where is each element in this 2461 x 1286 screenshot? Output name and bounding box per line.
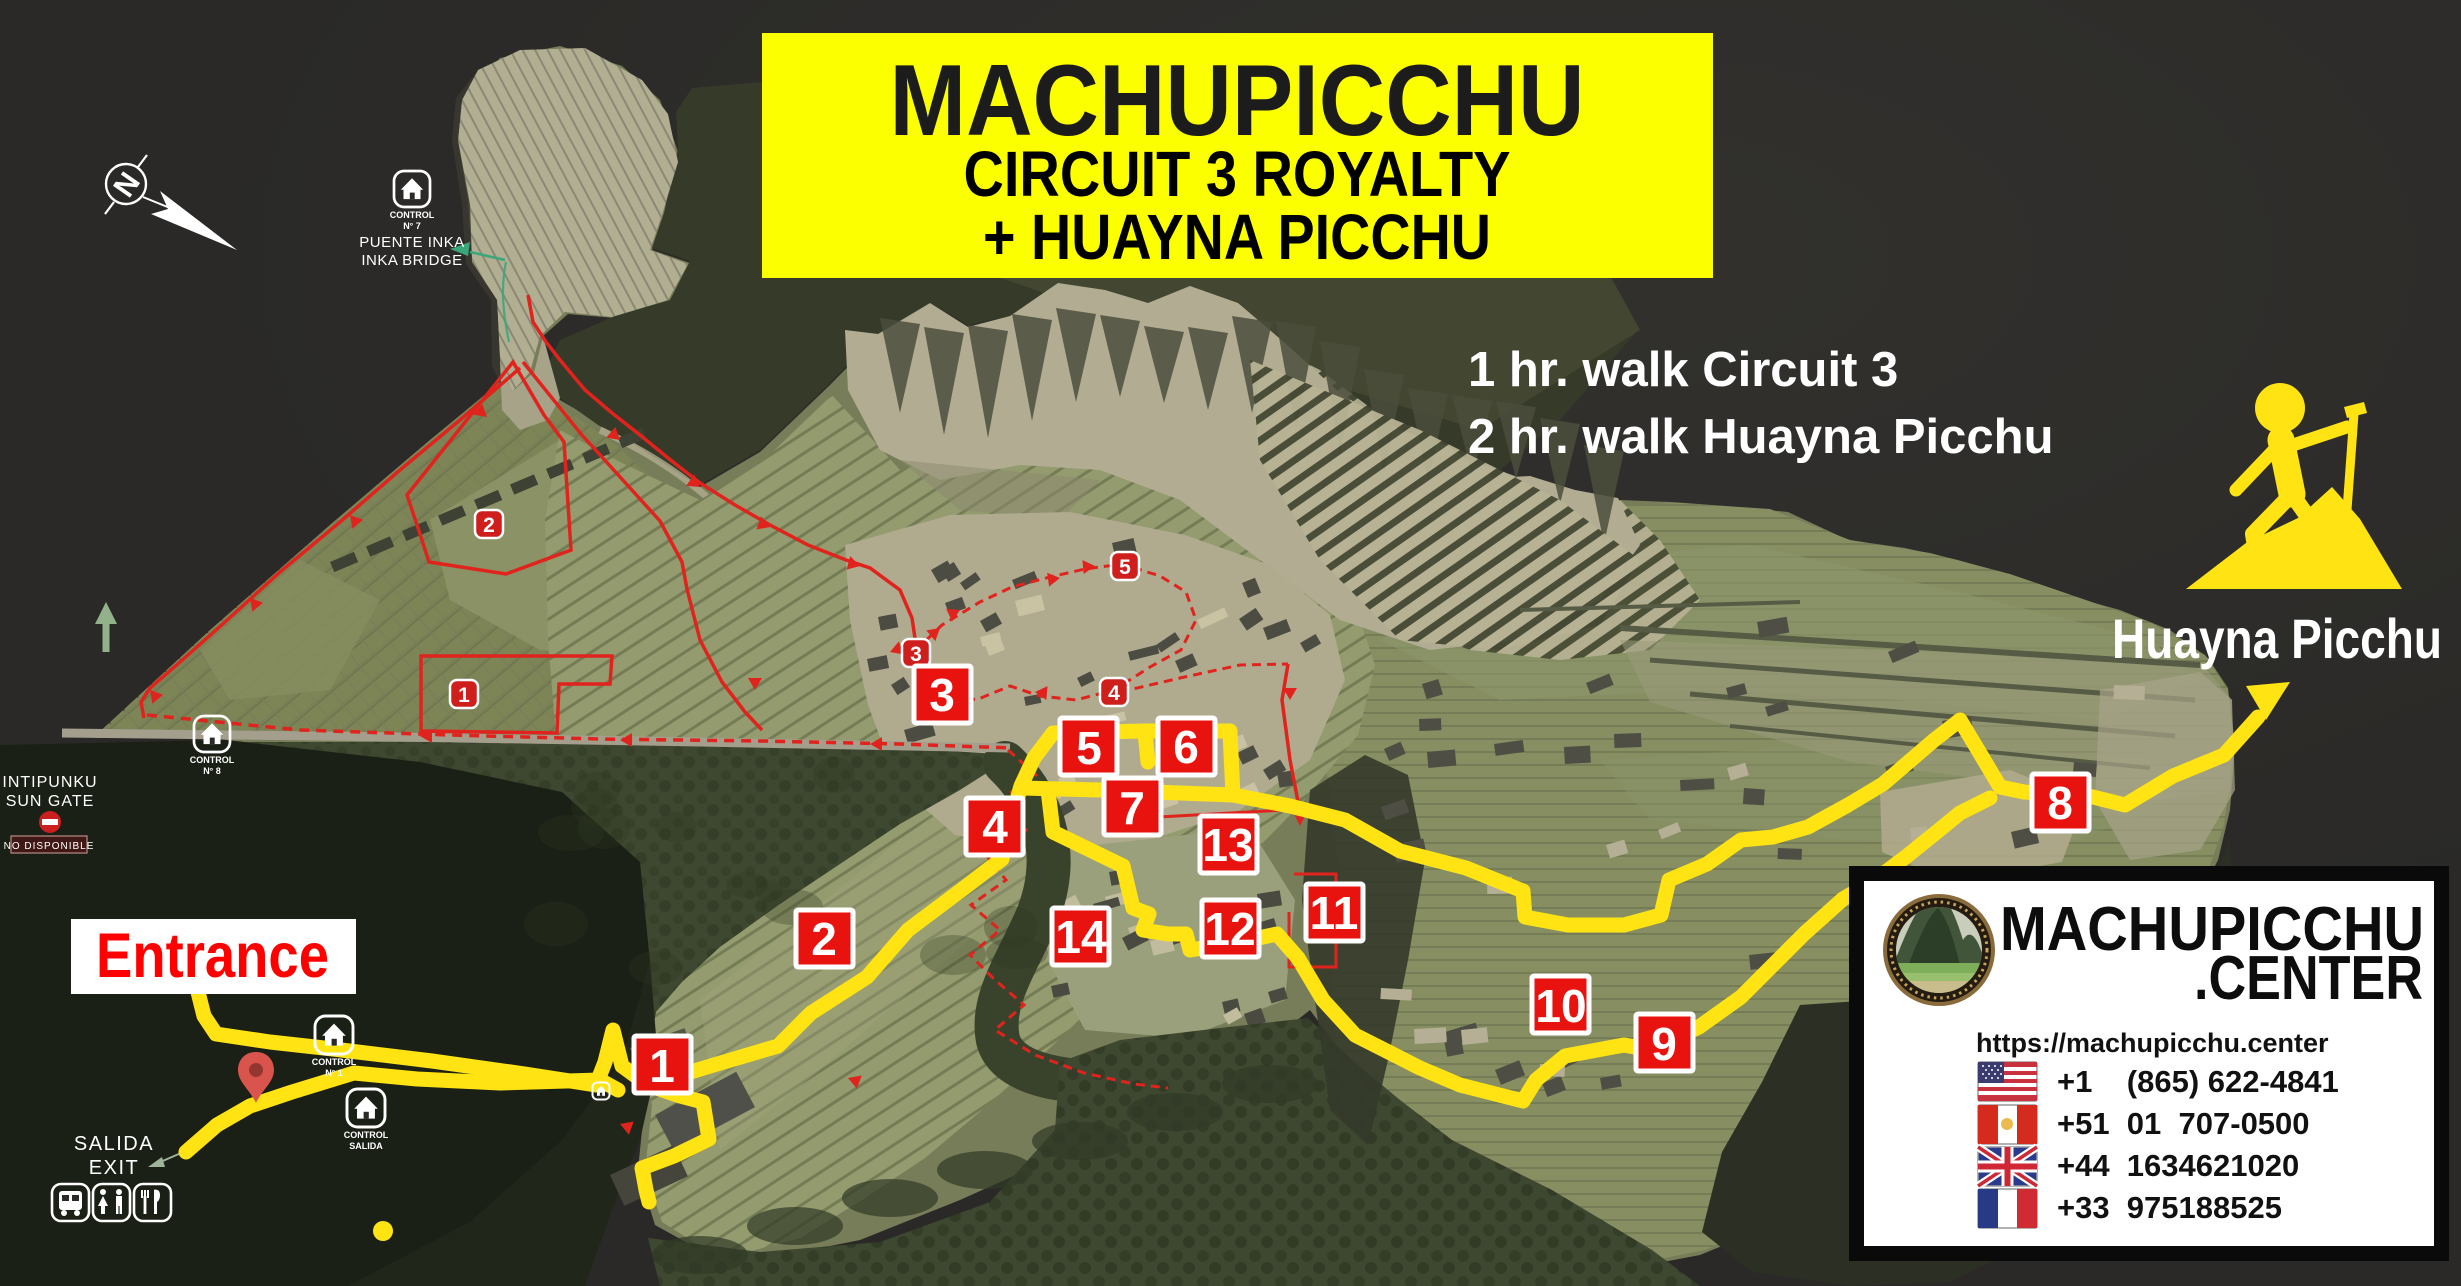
svg-text:9: 9 bbox=[1651, 1018, 1677, 1070]
svg-text:N° 1: N° 1 bbox=[325, 1068, 343, 1078]
svg-text:+1 (865) 622-4841: +1 (865) 622-4841 bbox=[2057, 1064, 2339, 1099]
svg-text:+ HUAYNA PICCHU: + HUAYNA PICCHU bbox=[983, 201, 1491, 273]
svg-text:NO DISPONIBLE: NO DISPONIBLE bbox=[4, 841, 95, 852]
svg-text:14: 14 bbox=[1055, 911, 1107, 963]
svg-text:EXIT: EXIT bbox=[89, 1157, 139, 1179]
svg-text:CIRCUIT 3 ROYALTY: CIRCUIT 3 ROYALTY bbox=[964, 138, 1511, 210]
svg-text:CONTROL: CONTROL bbox=[390, 210, 435, 220]
svg-text:4: 4 bbox=[982, 801, 1008, 853]
svg-text:SALIDA: SALIDA bbox=[74, 1133, 154, 1155]
svg-text:7: 7 bbox=[1119, 782, 1145, 834]
svg-text:+44 1634621020: +44 1634621020 bbox=[2057, 1148, 2299, 1183]
svg-text:11: 11 bbox=[1310, 887, 1359, 939]
svg-text:CONTROL: CONTROL bbox=[344, 1130, 389, 1140]
svg-text:2: 2 bbox=[483, 514, 495, 537]
svg-text:1 hr. walk Circuit 3: 1 hr. walk Circuit 3 bbox=[1468, 343, 1898, 397]
svg-text:5: 5 bbox=[1076, 722, 1102, 774]
svg-text:https://machupicchu.center: https://machupicchu.center bbox=[1976, 1028, 2329, 1058]
svg-text:8: 8 bbox=[2047, 777, 2073, 829]
svg-text:Entrance: Entrance bbox=[96, 921, 329, 991]
svg-text:.CENTER: .CENTER bbox=[2194, 944, 2423, 1013]
svg-text:+51 01 707-0500: +51 01 707-0500 bbox=[2057, 1106, 2310, 1141]
svg-text:12: 12 bbox=[1204, 903, 1255, 955]
svg-text:SUN GATE: SUN GATE bbox=[6, 793, 95, 810]
svg-text:Huayna Picchu: Huayna Picchu bbox=[2112, 607, 2442, 670]
svg-text:N° 8: N° 8 bbox=[203, 766, 221, 776]
svg-text:CONTROL: CONTROL bbox=[190, 755, 235, 765]
svg-text:4: 4 bbox=[1108, 682, 1120, 705]
svg-text:SALIDA: SALIDA bbox=[349, 1141, 383, 1151]
svg-text:13: 13 bbox=[1202, 819, 1253, 871]
svg-text:2 hr. walk Huayna Picchu: 2 hr. walk Huayna Picchu bbox=[1468, 410, 2054, 464]
svg-text:1: 1 bbox=[649, 1040, 675, 1092]
svg-text:CONTROL: CONTROL bbox=[312, 1057, 357, 1067]
svg-text:+33 975188525: +33 975188525 bbox=[2057, 1190, 2282, 1225]
svg-text:2: 2 bbox=[811, 913, 837, 965]
svg-text:PUENTE INKA: PUENTE INKA bbox=[359, 234, 465, 251]
svg-text:N° 7: N° 7 bbox=[403, 221, 421, 231]
svg-text:INTIPUNKU: INTIPUNKU bbox=[2, 774, 97, 791]
svg-text:5: 5 bbox=[1119, 556, 1131, 579]
svg-text:3: 3 bbox=[929, 669, 955, 721]
svg-text:1: 1 bbox=[458, 684, 470, 707]
svg-text:INKA BRIDGE: INKA BRIDGE bbox=[361, 252, 462, 269]
svg-text:10: 10 bbox=[1535, 980, 1586, 1032]
svg-text:3: 3 bbox=[910, 643, 922, 666]
svg-text:6: 6 bbox=[1173, 721, 1199, 773]
